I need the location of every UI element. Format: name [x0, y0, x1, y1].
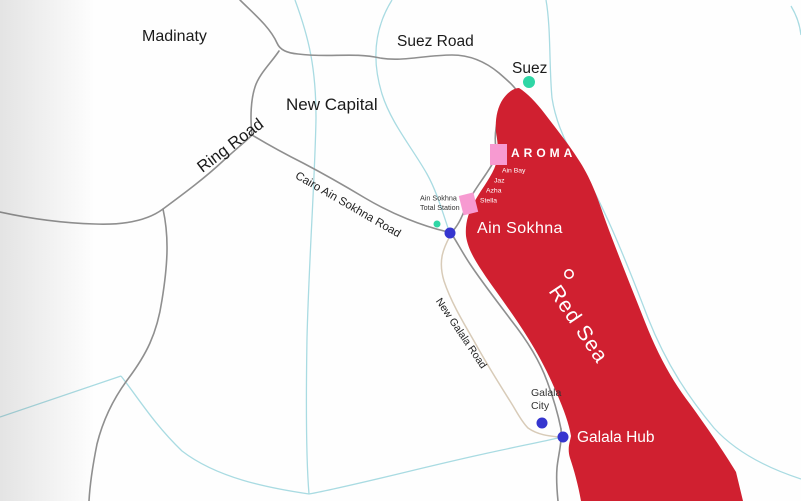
label-galala-hub: Galala Hub [577, 429, 655, 447]
road-south-branch [89, 209, 167, 501]
label-ain-sokhna-total-station: Ain Sokhna Total Station [420, 194, 460, 213]
waterway-south-west-lower [121, 376, 309, 494]
label-madinaty: Madinaty [142, 28, 207, 46]
galala-hub-marker [558, 432, 569, 443]
ain-sokhna-junction-marker [445, 228, 456, 239]
waterway-south-west-upper [0, 376, 121, 417]
label-galala-city-line1: Galala [531, 387, 561, 399]
map-artwork [0, 0, 801, 501]
label-station-line1: Ain Sokhna [420, 195, 457, 203]
total-station-marker [434, 221, 441, 228]
galala-city-marker [537, 418, 548, 429]
stella-project-marker [459, 192, 478, 215]
label-new-capital: New Capital [286, 95, 378, 115]
label-station-line2: Total Station [420, 204, 460, 212]
map-canvas: Madinaty New Capital Suez Road Suez Ring… [0, 0, 801, 501]
label-suez-road: Suez Road [397, 33, 474, 51]
label-resort-stella: Stella [480, 197, 497, 204]
label-ain-sokhna: Ain Sokhna [477, 220, 563, 238]
label-galala-city: Galala City [531, 387, 561, 413]
aroma-brand-logo: AROMA [511, 146, 576, 160]
label-resort-ain-bay: Ain Bay [502, 167, 525, 174]
label-suez: Suez [512, 60, 547, 78]
label-resort-jaz: Jaz [494, 177, 505, 184]
waterway-south-east [309, 438, 558, 494]
label-resort-azha: Azha [486, 187, 502, 194]
waterway-central [295, 0, 316, 494]
road-cairo-ain-sokhna [252, 135, 448, 232]
waterway-corner-arc [791, 6, 801, 35]
label-galala-city-line2: City [531, 400, 549, 412]
aroma-project-marker [490, 144, 507, 165]
